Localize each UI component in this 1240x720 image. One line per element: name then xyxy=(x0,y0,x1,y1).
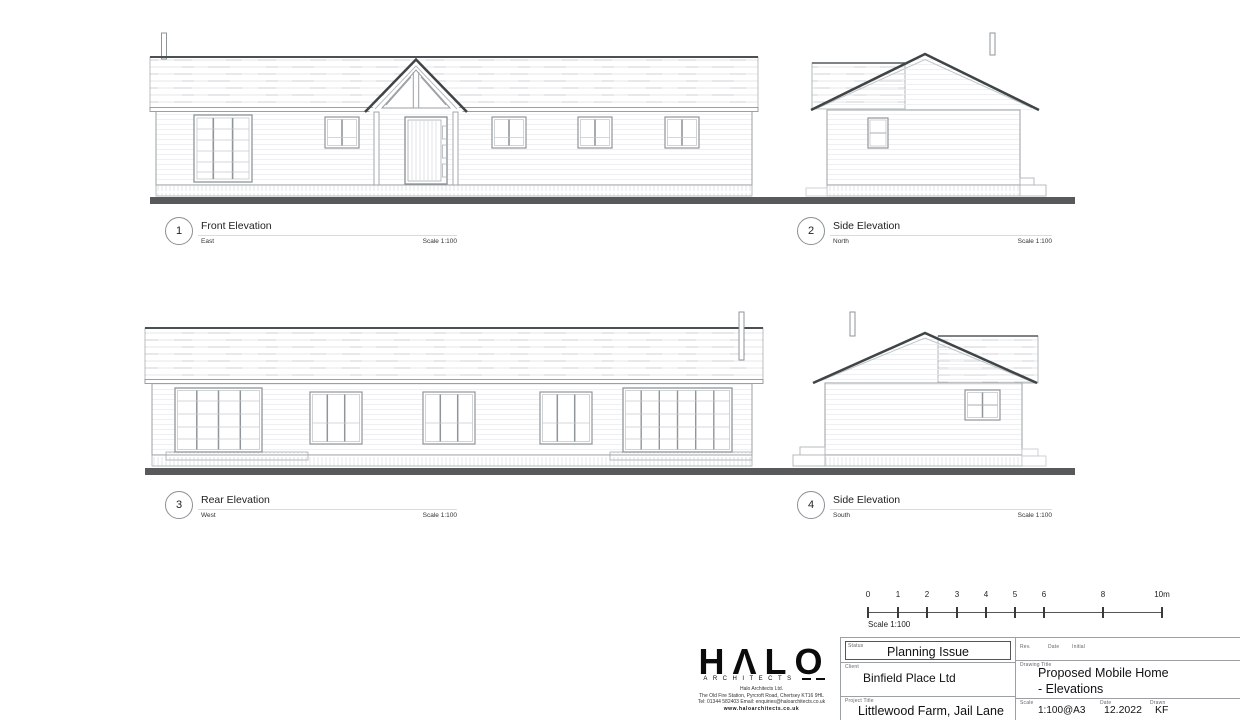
scale-tick-label: 10m xyxy=(1154,590,1170,599)
window xyxy=(310,392,362,444)
scale-tick xyxy=(926,607,928,618)
drawing-title-line1: Proposed Mobile Home xyxy=(1038,666,1169,680)
front-elevation-drawing xyxy=(150,33,758,196)
scale-tick-label: 2 xyxy=(925,590,929,599)
titleblock-border xyxy=(840,696,1015,697)
label-divider xyxy=(198,235,457,236)
label-divider xyxy=(830,509,1052,510)
steps xyxy=(1020,178,1034,185)
window xyxy=(665,117,699,148)
rev-initial-header: Initial xyxy=(1072,644,1085,650)
wall xyxy=(827,110,1020,185)
eaves-fascia xyxy=(145,380,763,384)
rear-elevation-drawing xyxy=(145,312,763,466)
architect-address: Halo Architects Ltd. The Old Fire Statio… xyxy=(683,686,840,712)
elevation-scale: Scale 1:100 xyxy=(423,238,457,245)
window xyxy=(423,392,475,444)
scale-label: Scale xyxy=(1020,700,1034,706)
porch-post xyxy=(374,112,379,185)
titleblock-border xyxy=(840,662,1015,663)
rev-date-header: Date xyxy=(1048,644,1059,650)
elevation-title: Rear Elevation xyxy=(201,491,457,506)
elevation-number-badge: 3 xyxy=(165,491,193,519)
steps xyxy=(1022,449,1038,456)
label-divider xyxy=(830,235,1052,236)
steps xyxy=(793,455,825,466)
base-skirt xyxy=(825,455,1022,466)
scale-tick xyxy=(1014,607,1016,618)
website-link[interactable]: www.haloarchitects.co.uk xyxy=(683,706,840,713)
roof xyxy=(150,57,758,109)
elevation-title: Side Elevation xyxy=(833,217,1052,232)
scale-caption: Scale 1:100 xyxy=(868,620,910,629)
elevation-scale: Scale 1:100 xyxy=(1018,238,1052,245)
logo-dash-mark xyxy=(802,678,811,681)
side-elevation-north-drawing xyxy=(806,33,1046,196)
ground-line xyxy=(150,197,1075,204)
elevation-number: 2 xyxy=(808,225,814,237)
status-box: Status Planning Issue xyxy=(845,641,1011,660)
elevation-direction: North xyxy=(833,238,849,245)
deck-strip xyxy=(166,452,308,460)
scale-tick xyxy=(1102,607,1104,618)
deck-strip xyxy=(610,452,752,460)
side-elevation-south-drawing xyxy=(793,312,1046,466)
flue-pipe xyxy=(162,33,167,59)
window xyxy=(578,117,612,148)
titleblock-border xyxy=(840,637,1240,638)
logo-wordmark: HΛLO xyxy=(689,645,840,679)
scale-bar: 0 1 2 3 4 5 6 8 10m Scale 1:100 xyxy=(860,588,1172,636)
halo-logo: HΛLO ARCHITECTS Halo Architects Ltd. The… xyxy=(683,645,840,720)
window xyxy=(965,390,1000,420)
elevation-number-badge: 1 xyxy=(165,217,193,245)
steps xyxy=(800,447,825,455)
logo-dash-mark xyxy=(816,678,825,681)
window xyxy=(540,392,592,444)
elevation-direction: West xyxy=(201,512,216,519)
scale-tick-label: 6 xyxy=(1042,590,1046,599)
elevation-direction: East xyxy=(201,238,214,245)
front-door xyxy=(405,117,448,184)
flue-pipe xyxy=(850,312,855,336)
scale-tick-label: 8 xyxy=(1101,590,1105,599)
label-divider xyxy=(198,509,457,510)
window xyxy=(194,115,252,182)
elevation-scale: Scale 1:100 xyxy=(1018,512,1052,519)
elevation-label-1: 1 Front Elevation East Scale 1:100 xyxy=(165,217,457,245)
address-line: Tel: 01344 582403 Email: enquiries@haloa… xyxy=(683,699,840,706)
drawn-value: KF xyxy=(1155,704,1168,716)
titleblock-border xyxy=(1015,660,1240,661)
scale-tick-label: 4 xyxy=(984,590,988,599)
scale-tick-label: 3 xyxy=(955,590,959,599)
scale-tick-label: 5 xyxy=(1013,590,1017,599)
elevation-number: 1 xyxy=(176,225,182,237)
elevation-label-2: 2 Side Elevation North Scale 1:100 xyxy=(797,217,1052,245)
status-value: Planning Issue xyxy=(846,645,1010,659)
sliding-doors xyxy=(623,388,732,452)
project-value: Littlewood Farm, Jail Lane xyxy=(858,704,1004,718)
client-value: Binfield Place Ltd xyxy=(863,671,956,685)
scale-tick xyxy=(1043,607,1045,618)
scale-tick xyxy=(956,607,958,618)
base-skirt xyxy=(827,185,1020,196)
scale-tick-label: 0 xyxy=(866,590,870,599)
elevation-number-badge: 4 xyxy=(797,491,825,519)
base-skirt xyxy=(156,185,752,196)
steps xyxy=(1022,456,1046,466)
elevation-label-4: 4 Side Elevation South Scale 1:100 xyxy=(797,491,1052,519)
scale-tick-label: 1 xyxy=(896,590,900,599)
date-value: 12.2022 xyxy=(1104,704,1142,716)
roof xyxy=(145,328,763,381)
rev-header: Rev. xyxy=(1020,644,1031,650)
drawing-title-line2: - Elevations xyxy=(1038,682,1103,696)
elevation-scale: Scale 1:100 xyxy=(423,512,457,519)
steps xyxy=(806,188,827,196)
elevation-title: Side Elevation xyxy=(833,491,1052,506)
titleblock-border xyxy=(840,637,841,720)
titleblock-border xyxy=(1015,637,1016,720)
elevations-drawing xyxy=(0,0,1240,570)
glazed-doors xyxy=(175,388,262,452)
elevation-direction: South xyxy=(833,512,850,519)
window xyxy=(492,117,526,148)
window xyxy=(868,118,888,148)
elevation-number: 3 xyxy=(176,499,182,511)
porch-post xyxy=(453,112,458,185)
ground-line xyxy=(145,468,1075,475)
scale-value: 1:100@A3 xyxy=(1038,705,1085,716)
elevation-title: Front Elevation xyxy=(201,217,457,232)
drawing-sheet: 1 Front Elevation East Scale 1:100 2 Sid… xyxy=(0,0,1240,720)
logo-architects-label: ARCHITECTS xyxy=(703,676,796,682)
flue-pipe xyxy=(990,33,995,55)
elevation-label-3: 3 Rear Elevation West Scale 1:100 xyxy=(165,491,457,519)
elevation-number: 4 xyxy=(808,499,814,511)
steps xyxy=(1020,185,1046,196)
scale-tick xyxy=(867,607,869,618)
scale-tick xyxy=(897,607,899,618)
titleblock-border xyxy=(1015,698,1240,699)
elevation-number-badge: 2 xyxy=(797,217,825,245)
scale-tick xyxy=(985,607,987,618)
client-label: Client xyxy=(845,664,859,670)
scale-tick xyxy=(1161,607,1163,618)
window xyxy=(325,117,359,148)
